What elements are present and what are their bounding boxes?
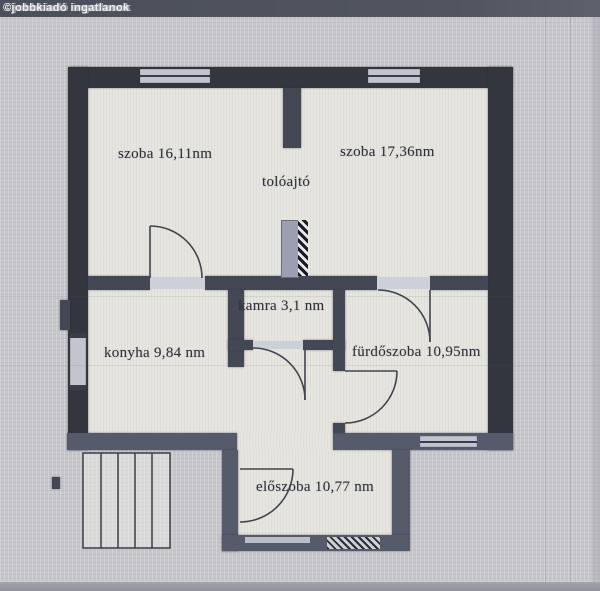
room-label-szoba2: szoba 17,36nm [340,144,435,161]
staircase-outline [83,453,170,548]
watermark-band: ©jobbkiadó ingatlanok [0,0,600,17]
watermark-text: ©jobbkiadó ingatlanok [3,2,130,14]
staircase [83,453,170,548]
fold-line-horizontal [0,296,600,297]
room-label-furdoszoba: fürdőszoba 10,95nm [352,344,481,361]
fold-line-horizontal [0,365,600,366]
door-arc-furdoszoba-top [378,290,430,342]
annotation-toloajto: tolóajtó [262,174,310,191]
room-label-konyha: konyha 9,84 nm [104,345,205,362]
photo-edge-bottom [0,582,600,591]
photo-edge-right [592,0,600,591]
room-label-eloszoba: előszoba 10,77 nm [256,479,374,496]
room-label-szoba1: szoba 16,11nm [118,146,212,163]
door-arc-szoba1 [150,226,202,278]
door-arc-furdoszoba-left [345,371,397,423]
room-label-kamra: kamra 3,1 nm [238,298,325,315]
door-arc-kamra [253,348,305,400]
floorplan-photo: szoba 16,11nm szoba 17,36nm tolóajtó kam… [0,0,600,591]
